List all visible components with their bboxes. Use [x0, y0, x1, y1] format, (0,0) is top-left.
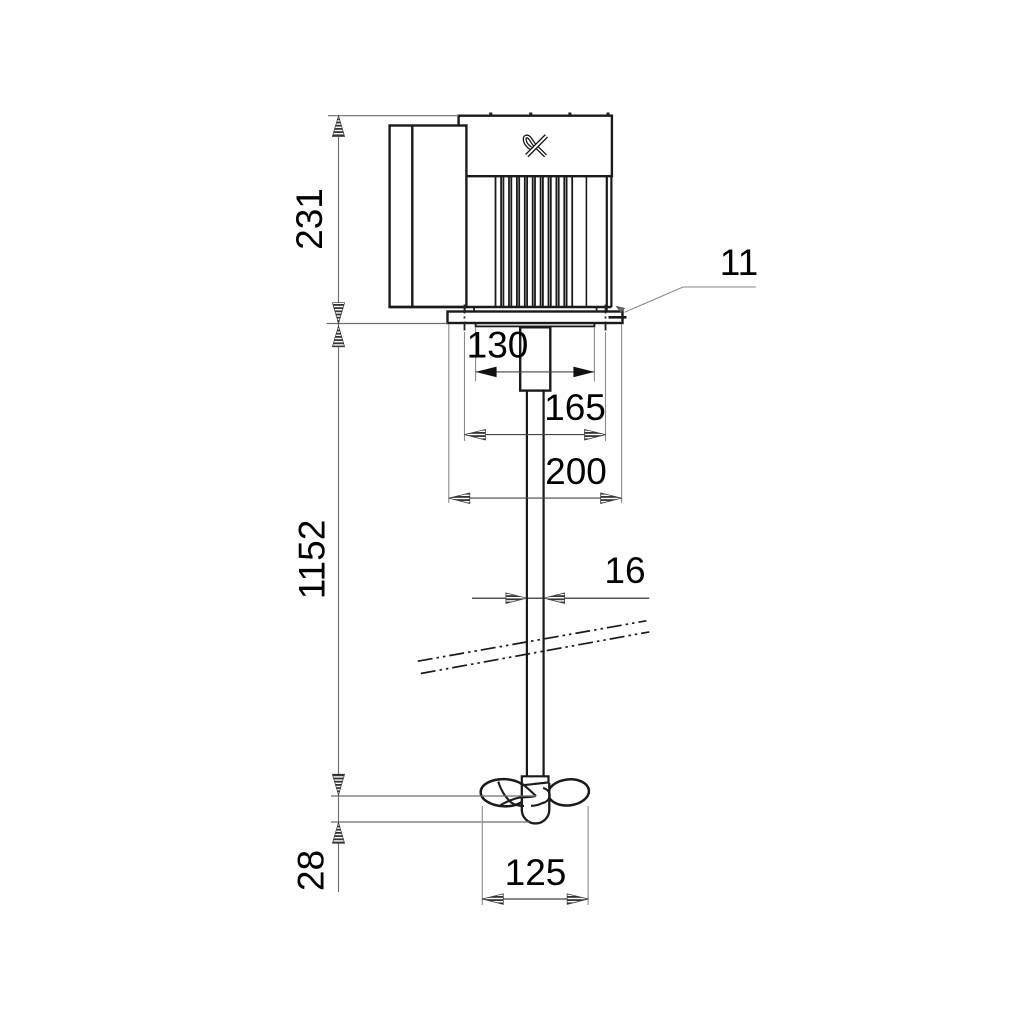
svg-text:1152: 1152	[292, 520, 333, 600]
svg-text:231: 231	[289, 188, 330, 250]
svg-text:11: 11	[720, 242, 758, 283]
svg-text:16: 16	[604, 550, 645, 591]
svg-text:125: 125	[505, 852, 567, 893]
svg-text:200: 200	[545, 451, 607, 492]
svg-text:28: 28	[291, 850, 332, 891]
svg-text:130: 130	[467, 325, 529, 366]
svg-text:165: 165	[544, 387, 606, 428]
